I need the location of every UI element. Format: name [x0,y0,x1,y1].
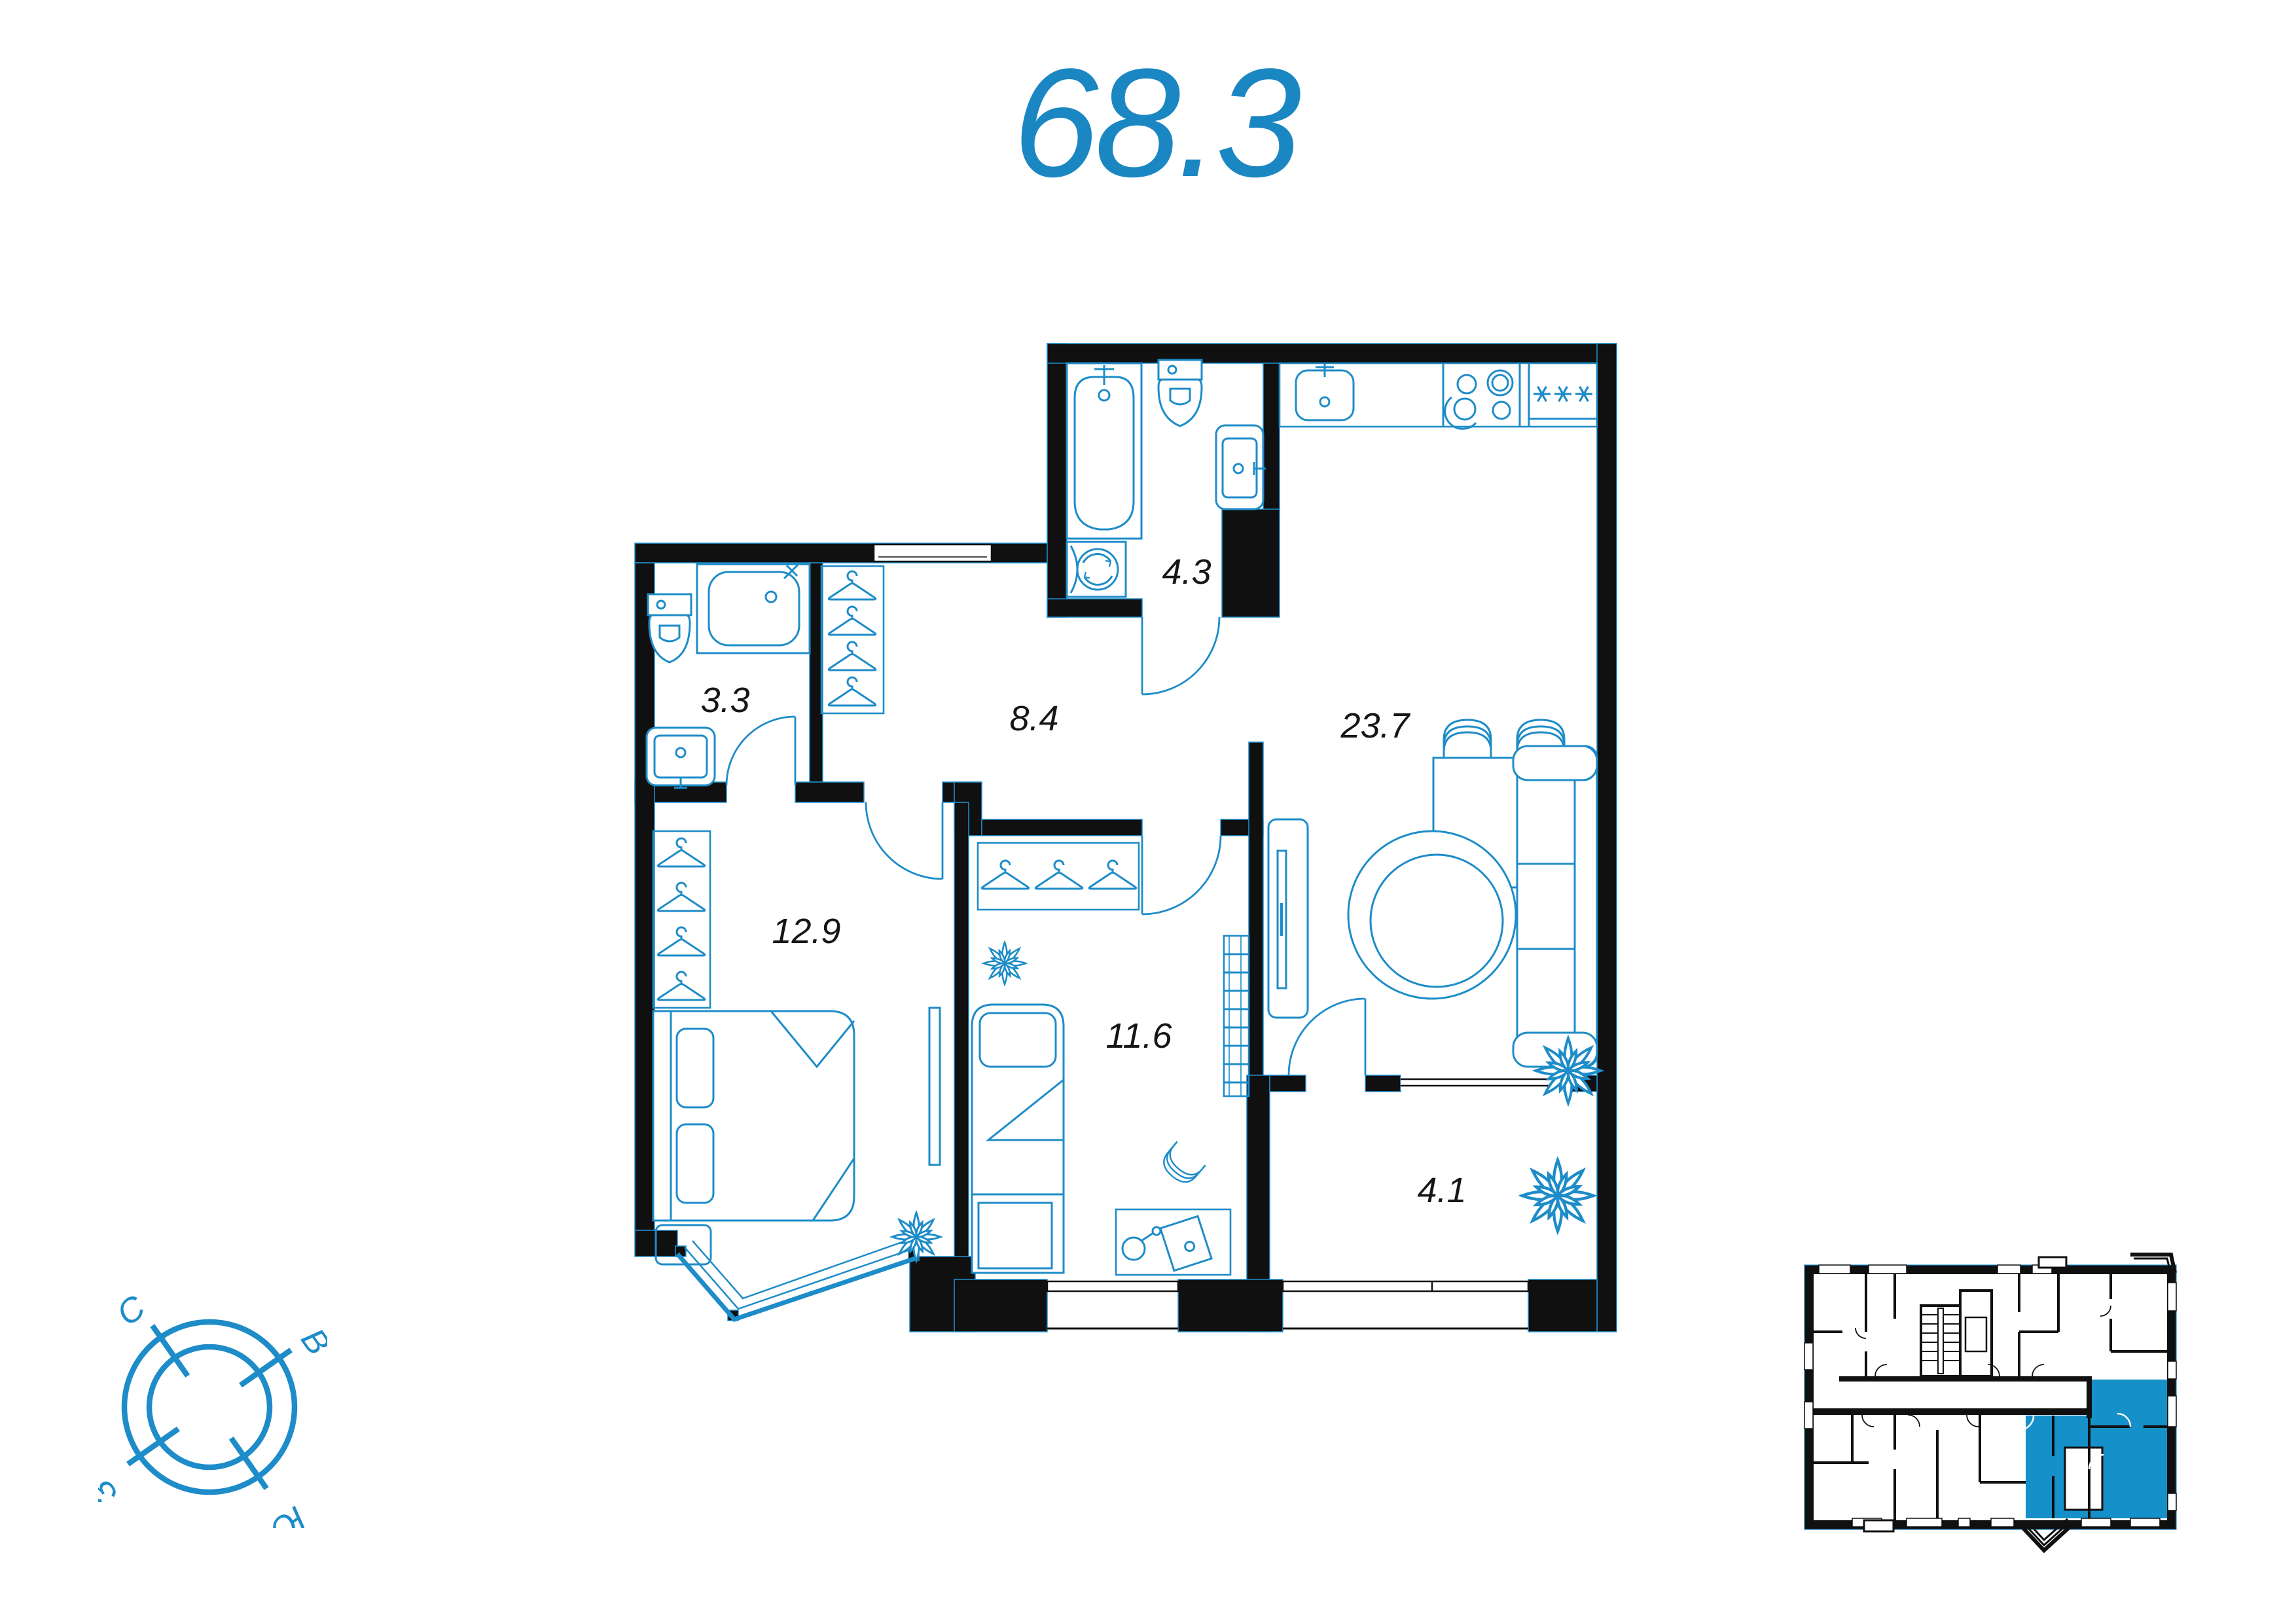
single-bed-icon [972,1005,1064,1273]
compass: С В З Ю [98,1293,327,1528]
building-mini-plan [1803,1250,2183,1561]
room-label-bedroom: 12.9 [772,912,840,951]
apartment-floor-plan: 3.3 8.4 4.3 23.7 12.9 11.6 4.1 [622,327,1669,1348]
bay-window [677,1238,917,1319]
plant-icon-3 [984,942,1026,984]
door-bedroom-2 [1142,836,1221,914]
tv-icon [929,1008,940,1165]
bookshelf-icon [1224,936,1249,1096]
floor-plan-sheet: 68.3 [0,0,2296,1623]
door-bathroom-big [1142,617,1219,694]
wardrobe-icon [821,566,884,713]
room-label-bedroom-2: 11.6 [1105,1016,1172,1056]
washbasin-icon [647,728,715,788]
sofa-icon [1513,746,1597,1067]
compass-south-label: Ю [262,1499,313,1528]
corridor [1814,1376,2092,1418]
compass-east-label: В [293,1321,327,1362]
compass-north-label: С [110,1293,152,1334]
closet-icon [653,831,710,1008]
double-bed-icon [653,1011,854,1221]
bathtub-icon [1067,363,1141,539]
room-label-hallway: 8.4 [1009,699,1058,738]
washing-machine-icon [1067,542,1126,597]
door-bedroom [866,802,942,879]
plant-icon [1535,1038,1600,1103]
corner-sink-icon [697,563,810,653]
total-area-title: 68.3 [851,34,1460,212]
plant-icon-4 [1522,1160,1594,1232]
door-bathroom-small [726,717,795,785]
room-label-bathroom-big: 4.3 [1162,552,1211,592]
sink-2-icon [1216,425,1266,509]
room-label-loggia: 4.1 [1417,1171,1466,1210]
closet-2-icon [978,843,1139,910]
compass-west-label: З [98,1472,125,1511]
room-label-bathroom-small: 3.3 [700,681,749,720]
round-chair-icon [1348,831,1516,999]
toilet-2-icon [1158,360,1202,426]
plant-icon-2 [892,1213,941,1261]
desk-icon [1116,1141,1230,1275]
tv-cabinet-icon [1268,819,1308,1018]
room-label-living-kitchen: 23.7 [1340,706,1410,745]
